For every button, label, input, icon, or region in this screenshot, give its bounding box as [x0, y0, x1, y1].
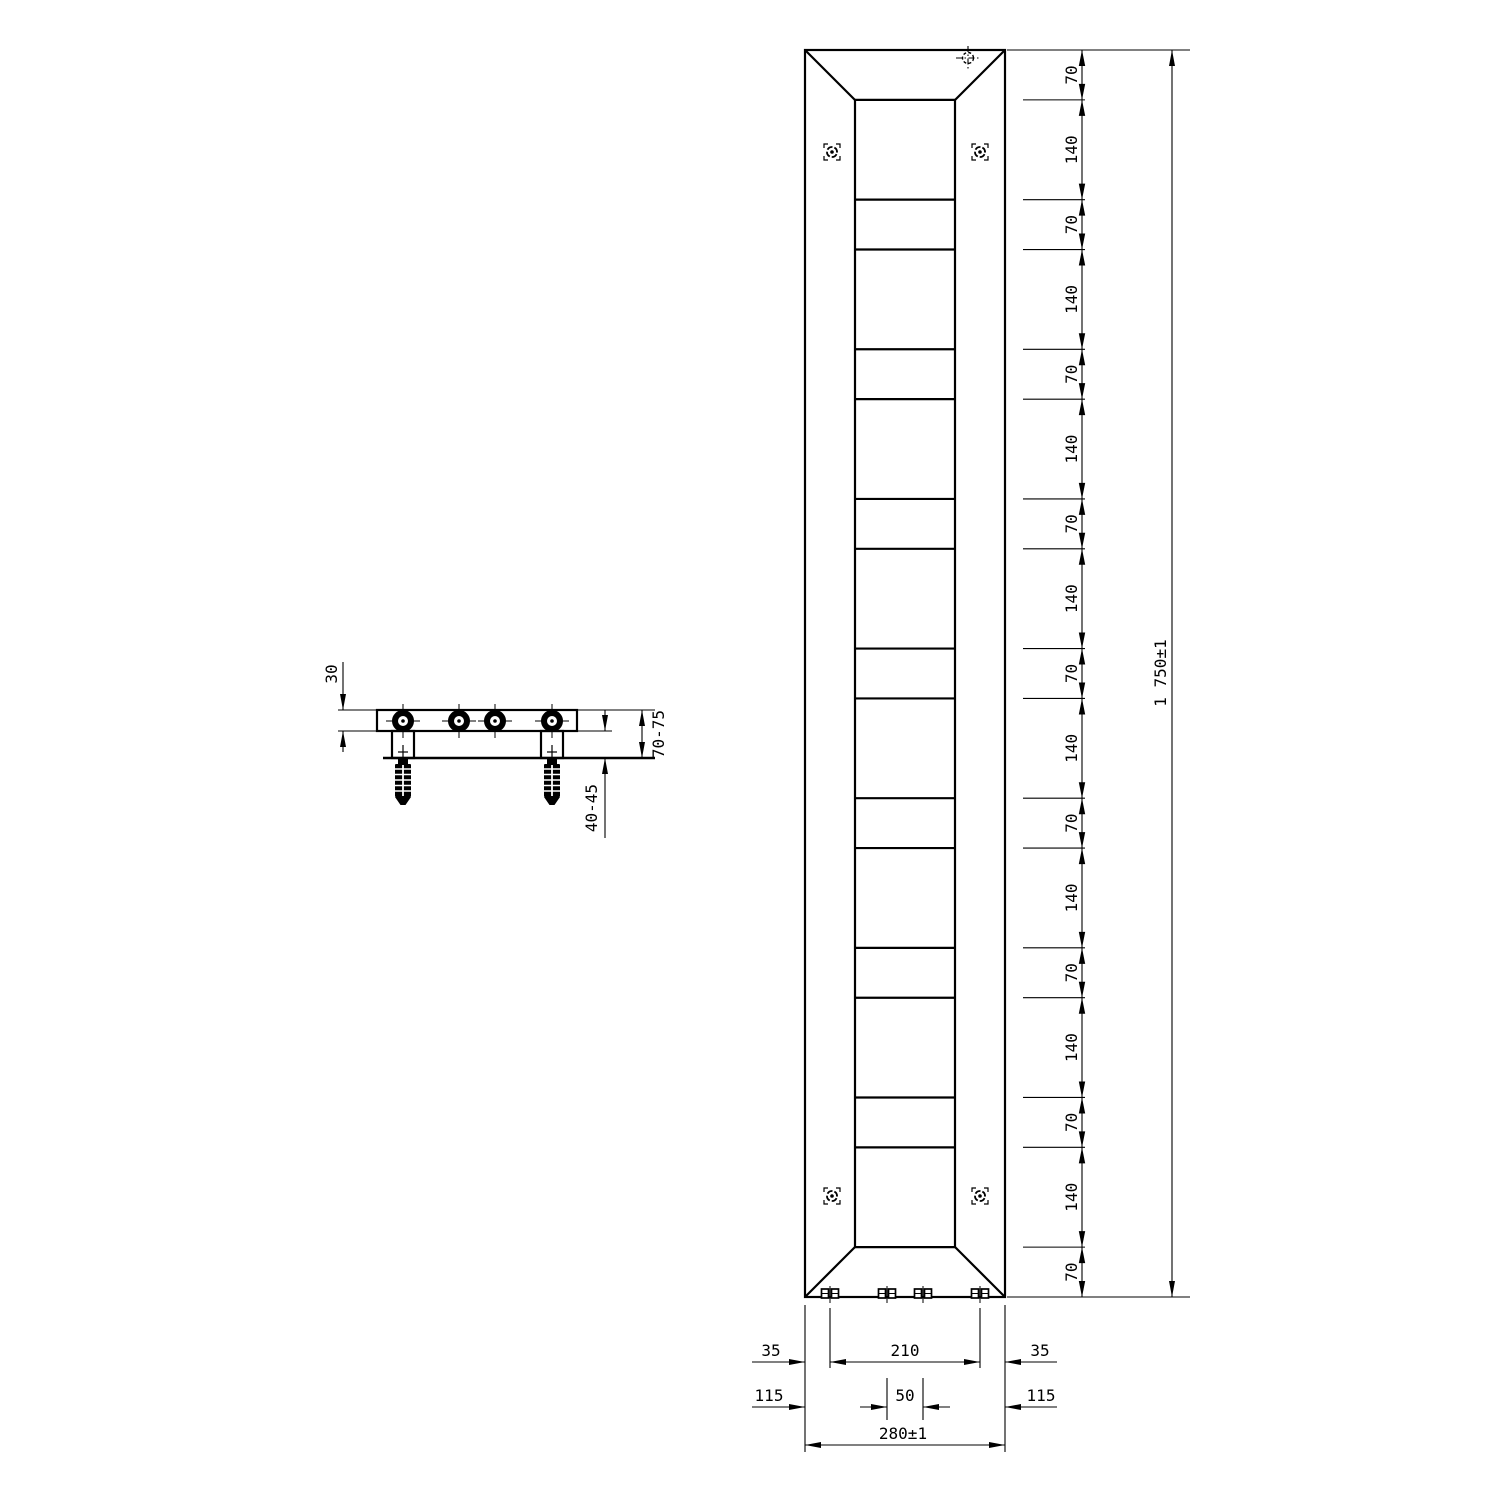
chain-dim-label: 140	[1062, 884, 1081, 913]
connection-span-label: 210	[891, 1341, 920, 1360]
chain-dim-label: 140	[1062, 584, 1081, 613]
chain-dim-label: 140	[1062, 135, 1081, 164]
left-offset-label: 35	[761, 1341, 780, 1360]
front-view	[805, 46, 1005, 1303]
chain-dim-label: 70	[1062, 514, 1081, 533]
chain-dim-label: 140	[1062, 435, 1081, 464]
side-view: 30 70-75 40-45	[322, 662, 668, 838]
dimension-row-offsets: 35 210 35	[752, 1341, 1057, 1365]
chain-dim-label: 70	[1062, 215, 1081, 234]
dimension-row-overall-width: 280±1	[805, 1424, 1005, 1448]
wall-clearance-label: 70-75	[649, 710, 668, 758]
overall-height-dimension: 1 750±1	[1151, 50, 1175, 1297]
chain-dim-label: 140	[1062, 734, 1081, 763]
wall-clearance-dimension: 70-75	[577, 710, 668, 758]
chain-dim-label: 70	[1062, 963, 1081, 982]
depth-label: 30	[322, 664, 341, 683]
right-margin-label: 115	[1027, 1386, 1056, 1405]
anchor-depth-dimension: 40-45	[577, 710, 612, 838]
chain-dim-label: 140	[1062, 1033, 1081, 1062]
center-pair-span-label: 50	[895, 1386, 914, 1405]
radiator-outline	[805, 50, 1005, 1297]
overall-width-label: 280±1	[879, 1424, 927, 1443]
right-offset-label: 35	[1030, 1341, 1049, 1360]
dimension-row-margins: 115 50 115	[752, 1386, 1057, 1410]
chain-dim-label: 70	[1062, 814, 1081, 833]
chain-dim-label: 70	[1062, 1113, 1081, 1132]
left-margin-label: 115	[755, 1386, 784, 1405]
chain-dim-label: 70	[1062, 1262, 1081, 1281]
bottom-dimensions: 35 210 35 115 50 115 280±1	[752, 1305, 1057, 1452]
anchor-depth-label: 40-45	[582, 784, 601, 832]
technical-drawing-sheet: 30 70-75 40-45	[0, 0, 1500, 1500]
chain-dim-label: 140	[1062, 285, 1081, 314]
overall-height-label: 1 750±1	[1151, 639, 1170, 706]
chain-dim-label: 70	[1062, 65, 1081, 84]
chain-dim-label: 70	[1062, 365, 1081, 384]
chain-dim-label: 70	[1062, 664, 1081, 683]
chain-dim-label: 140	[1062, 1183, 1081, 1212]
depth-dimension: 30	[322, 662, 377, 752]
drawing-canvas: 30 70-75 40-45	[0, 0, 1500, 1500]
